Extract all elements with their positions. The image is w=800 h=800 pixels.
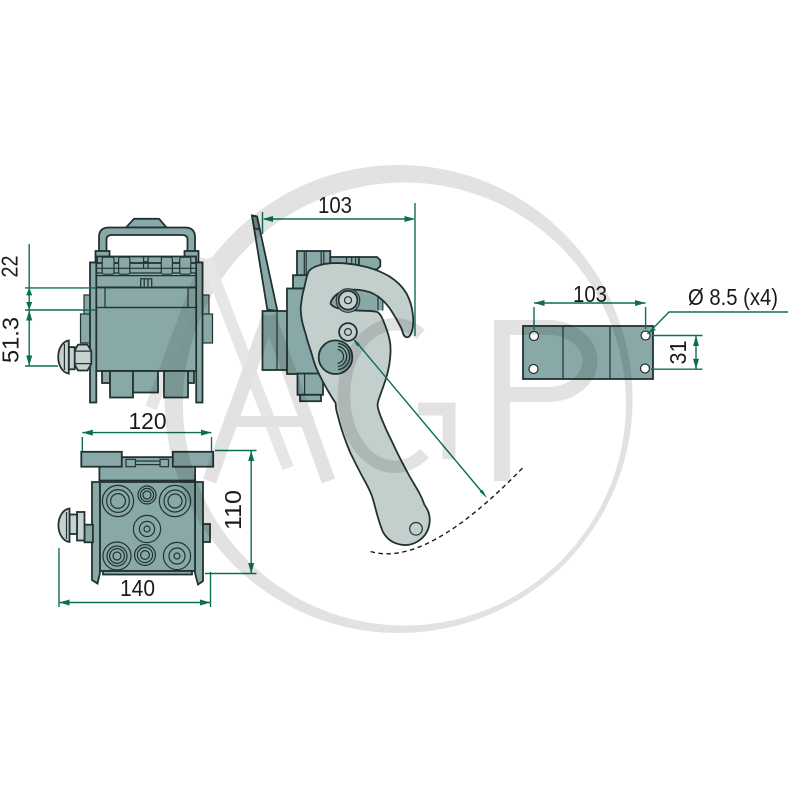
svg-text:120: 120 [129,408,167,434]
svg-text:22: 22 [0,256,23,278]
svg-text:51.3: 51.3 [0,317,24,363]
svg-text:Ø 8.5 (x4): Ø 8.5 (x4) [688,284,778,310]
svg-text:31: 31 [665,341,691,365]
svg-text:110: 110 [220,490,246,530]
svg-text:140: 140 [120,575,155,601]
